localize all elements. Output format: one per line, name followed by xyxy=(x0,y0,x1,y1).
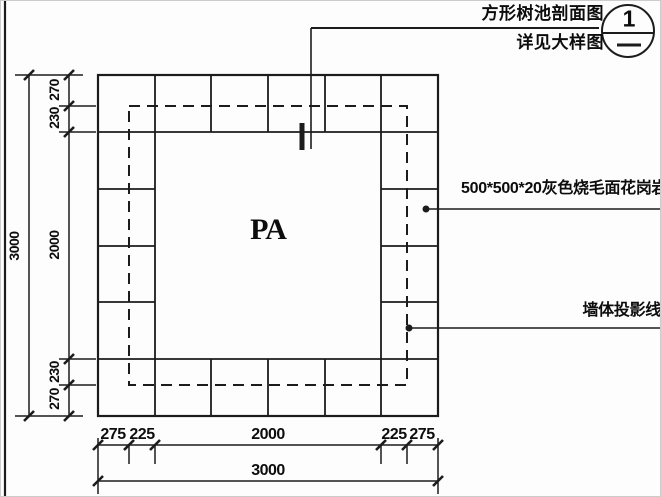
dim-left-total: 3000 xyxy=(7,231,21,260)
wall-projection-label-leader xyxy=(406,325,661,332)
granite-label-leader xyxy=(423,206,661,213)
wall-projection-label: 墙体投影线 xyxy=(541,303,661,319)
detail-bubble-number: 1 xyxy=(623,8,636,31)
callout-title: 方形树池剖面图 xyxy=(441,5,604,22)
planting-area-code: PA xyxy=(250,215,286,245)
dim-bottom-225-right: 225 xyxy=(381,427,406,443)
granite-spec-label: 500*500*20灰色烧毛面花岗岩 xyxy=(461,181,661,197)
dim-left-270-bot: 270 xyxy=(47,388,61,410)
plan-linework xyxy=(1,1,661,497)
dim-bottom-275-right: 275 xyxy=(409,427,434,443)
callout-subtitle: 详见大样图 xyxy=(441,34,604,51)
dim-left-230-bot: 230 xyxy=(47,361,61,383)
dim-left-230-top: 230 xyxy=(47,107,61,129)
dim-left-270-top: 270 xyxy=(47,79,61,101)
dim-left-2000: 2000 xyxy=(47,230,61,259)
dim-bottom-225-left: 225 xyxy=(129,427,154,443)
dim-bottom-total: 3000 xyxy=(251,463,285,479)
drawing-canvas: 方形树池剖面图 详见大样图 1 500*500*20灰色烧毛面花岗岩 墙体投影线… xyxy=(0,0,661,497)
dim-bottom-275-left: 275 xyxy=(100,427,125,443)
dim-bottom-2000: 2000 xyxy=(251,427,285,443)
